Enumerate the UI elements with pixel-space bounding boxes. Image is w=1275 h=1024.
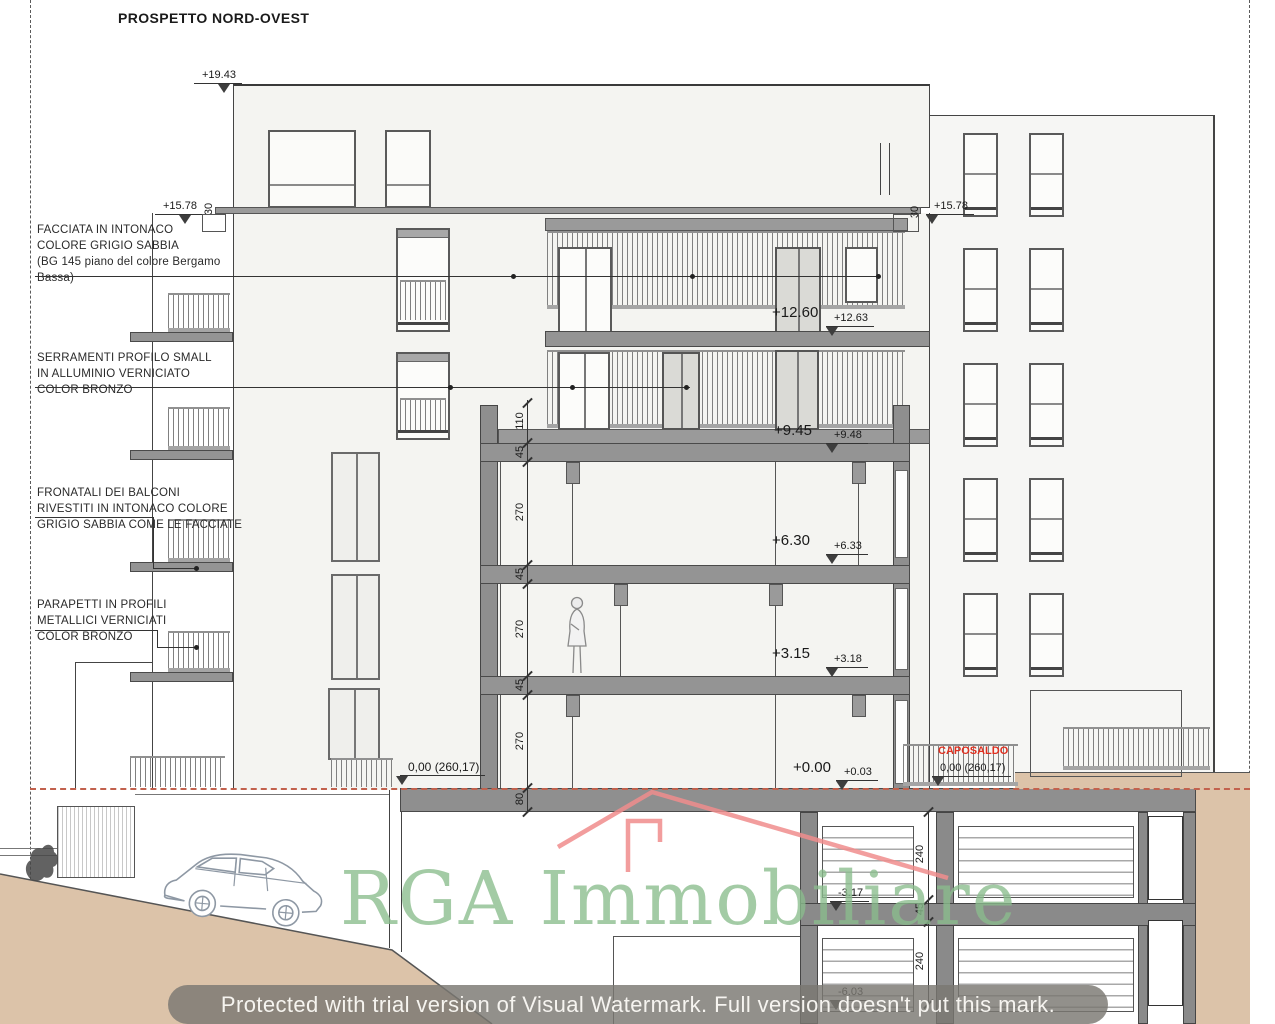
dim-240b: 240 <box>914 944 926 978</box>
rw-window-r1c2 <box>1029 133 1064 217</box>
annotation-serramenti: SERRAMENTI PROFILO SMALL IN ALLUMINIO VE… <box>37 350 237 398</box>
ground-window-railing <box>331 758 393 787</box>
window-level-b-1 <box>558 352 610 430</box>
window-level-a-3 <box>845 247 878 303</box>
garage-gate <box>57 806 135 878</box>
balcony-slab-4 <box>130 672 233 682</box>
level-triangle-icon <box>179 215 191 224</box>
trial-banner: Protected with trial version of Visual W… <box>168 985 1108 1024</box>
window-mullion <box>354 690 356 758</box>
shutter-box <box>398 230 448 238</box>
section-slab-3 <box>480 676 910 695</box>
door-lintel <box>769 584 783 606</box>
door-lintel <box>852 462 866 484</box>
basement-window-upper <box>1148 816 1183 900</box>
parapet-band-top <box>545 218 908 231</box>
leader-fronatali-h1 <box>35 517 153 518</box>
door-lintel <box>614 584 628 606</box>
dim-45a: 45 <box>514 435 526 469</box>
level-marker-15-78-left: +15.78 <box>155 196 203 224</box>
french-window-2 <box>331 574 380 680</box>
dim-270b: 270 <box>514 612 526 646</box>
level-triangle-icon <box>826 444 838 453</box>
leader-dot <box>876 274 881 279</box>
level-label-12-60: +12.60 <box>772 305 818 320</box>
dim-45c: 45 <box>514 668 526 702</box>
caposaldo-label: CAPOSALDO <box>938 746 1008 757</box>
page-title: PROSPETTO NORD-OVEST <box>118 10 309 26</box>
level-triangle-icon <box>218 84 230 93</box>
rw-window-r4c1 <box>963 478 998 562</box>
leader-dot <box>511 274 516 279</box>
window-upper-1 <box>396 228 450 332</box>
level-marker-12-63: +12.63 <box>826 308 874 336</box>
level-label-3-15: +3.15 <box>772 646 810 661</box>
ramp-edge-line <box>135 794 389 795</box>
window-mullion <box>584 354 586 428</box>
attic-window-large <box>268 130 356 208</box>
rw-window-r4c2 <box>1029 478 1064 562</box>
car-drawing <box>158 842 330 930</box>
section-slab-2 <box>480 565 910 584</box>
window-mullion <box>356 576 358 678</box>
dim-110: 110 <box>514 404 526 438</box>
window-frame-line <box>500 462 501 565</box>
level-marker-zero-left: 0,00 (260,17) <box>400 758 485 785</box>
french-window-1 <box>331 452 380 562</box>
leader-dot <box>570 385 575 390</box>
window-sill <box>398 430 448 433</box>
window-level-b-2 <box>662 352 700 430</box>
leader-fronatali-v <box>153 517 154 568</box>
leader-dot <box>194 645 199 650</box>
level-triangle-icon <box>396 776 408 785</box>
rw-window-r3c2 <box>1029 363 1064 447</box>
level-marker-19-43: +19.43 <box>194 65 242 93</box>
window-railing <box>400 398 446 430</box>
rw-window-r2c1 <box>963 248 998 332</box>
trial-banner-text: Protected with trial version of Visual W… <box>221 992 1055 1018</box>
level-label-9-45: +9.45 <box>774 423 812 438</box>
level-marker-15-78-right: +15.78 <box>926 196 974 224</box>
watermark-text: RGA Immobiliare <box>340 856 1018 942</box>
leader-dot <box>194 566 199 571</box>
door-lintel <box>566 462 580 484</box>
window-mullion <box>356 454 358 560</box>
balcony-railing-1 <box>168 293 230 332</box>
dim-45b: 45 <box>514 557 526 591</box>
window-level-b-3 <box>775 350 819 430</box>
level-marker-6-33: +6.33 <box>826 536 868 564</box>
rw-window-r2c2 <box>1029 248 1064 332</box>
leader-dot <box>448 385 453 390</box>
roof-slab-band <box>215 207 921 214</box>
level-label-0-00: +0.00 <box>793 760 831 775</box>
level-triangle-icon <box>926 215 938 224</box>
leader-parapetti-h2 <box>157 647 196 648</box>
window-sill <box>398 322 448 325</box>
attic-window-small <box>385 130 431 208</box>
leader-serramenti <box>35 387 690 388</box>
leader-dot <box>684 385 689 390</box>
french-window-3 <box>328 688 380 760</box>
rw-window-r5c2 <box>1029 593 1064 677</box>
rw-window-r3c1 <box>963 363 998 447</box>
door-lintel <box>566 695 580 717</box>
attic-window-divider2 <box>387 184 429 186</box>
leader-parapetti-v <box>157 630 158 647</box>
basement-window-lower <box>1148 920 1183 1006</box>
window-frame-line <box>500 584 501 676</box>
terrain-right-column <box>1196 788 1250 1024</box>
rw-window-r5c1 <box>963 593 998 677</box>
elevation-drawing: PROSPETTO NORD-OVEST <box>0 0 1275 1024</box>
annotation-fronatali: FRONATALI DEI BALCONI RIVESTITI IN INTON… <box>37 485 257 533</box>
attic-flue-detail <box>880 143 890 195</box>
parapet-step-left <box>202 214 226 232</box>
dim-80: 80 <box>514 782 526 816</box>
leader-parapetti-h1 <box>35 630 157 631</box>
section-right-window-1 <box>895 470 908 558</box>
person-figure <box>562 596 592 676</box>
section-wall-left <box>480 405 498 790</box>
level-marker-3-18: +3.18 <box>826 649 868 677</box>
window-mullion <box>797 352 799 428</box>
terrace-railing-ground <box>130 756 225 787</box>
shutter-box <box>398 354 448 362</box>
window-railing <box>400 280 446 320</box>
terrace-railing-right <box>1063 727 1210 770</box>
leader-dot <box>690 274 695 279</box>
window-mullion <box>585 249 587 331</box>
leader-fronatali-h2 <box>153 568 196 569</box>
terrace-outline-h <box>75 662 152 663</box>
window-frame-line <box>500 695 501 788</box>
section-right-window-2 <box>895 588 908 670</box>
level-triangle-icon <box>826 555 838 564</box>
door-lintel <box>852 695 866 717</box>
window-mullion <box>681 354 683 428</box>
level-triangle-icon <box>826 327 838 336</box>
balcony-slab-1 <box>130 332 233 342</box>
dim-270c: 270 <box>514 724 526 758</box>
level-label-6-30: +6.30 <box>772 533 810 548</box>
window-level-a-1 <box>558 247 612 333</box>
balcony-slab-2 <box>130 450 233 460</box>
terrace-outline-v <box>75 662 76 790</box>
level-marker-9-48: +9.48 <box>826 425 868 453</box>
attic-window-divider <box>270 184 354 186</box>
level-triangle-icon <box>826 668 838 677</box>
leader-facciata <box>35 276 880 277</box>
annotation-parapetti: PARAPETTI IN PROFILI METALLICI VERNICIAT… <box>37 597 217 645</box>
balcony-slab-3 <box>130 562 233 572</box>
balcony-railing-2 <box>168 407 230 450</box>
dim-270a: 270 <box>514 495 526 529</box>
shrub-drawing <box>22 836 58 886</box>
parapet-step-right <box>893 214 919 232</box>
partition <box>775 462 776 565</box>
window-upper-2 <box>396 352 450 440</box>
